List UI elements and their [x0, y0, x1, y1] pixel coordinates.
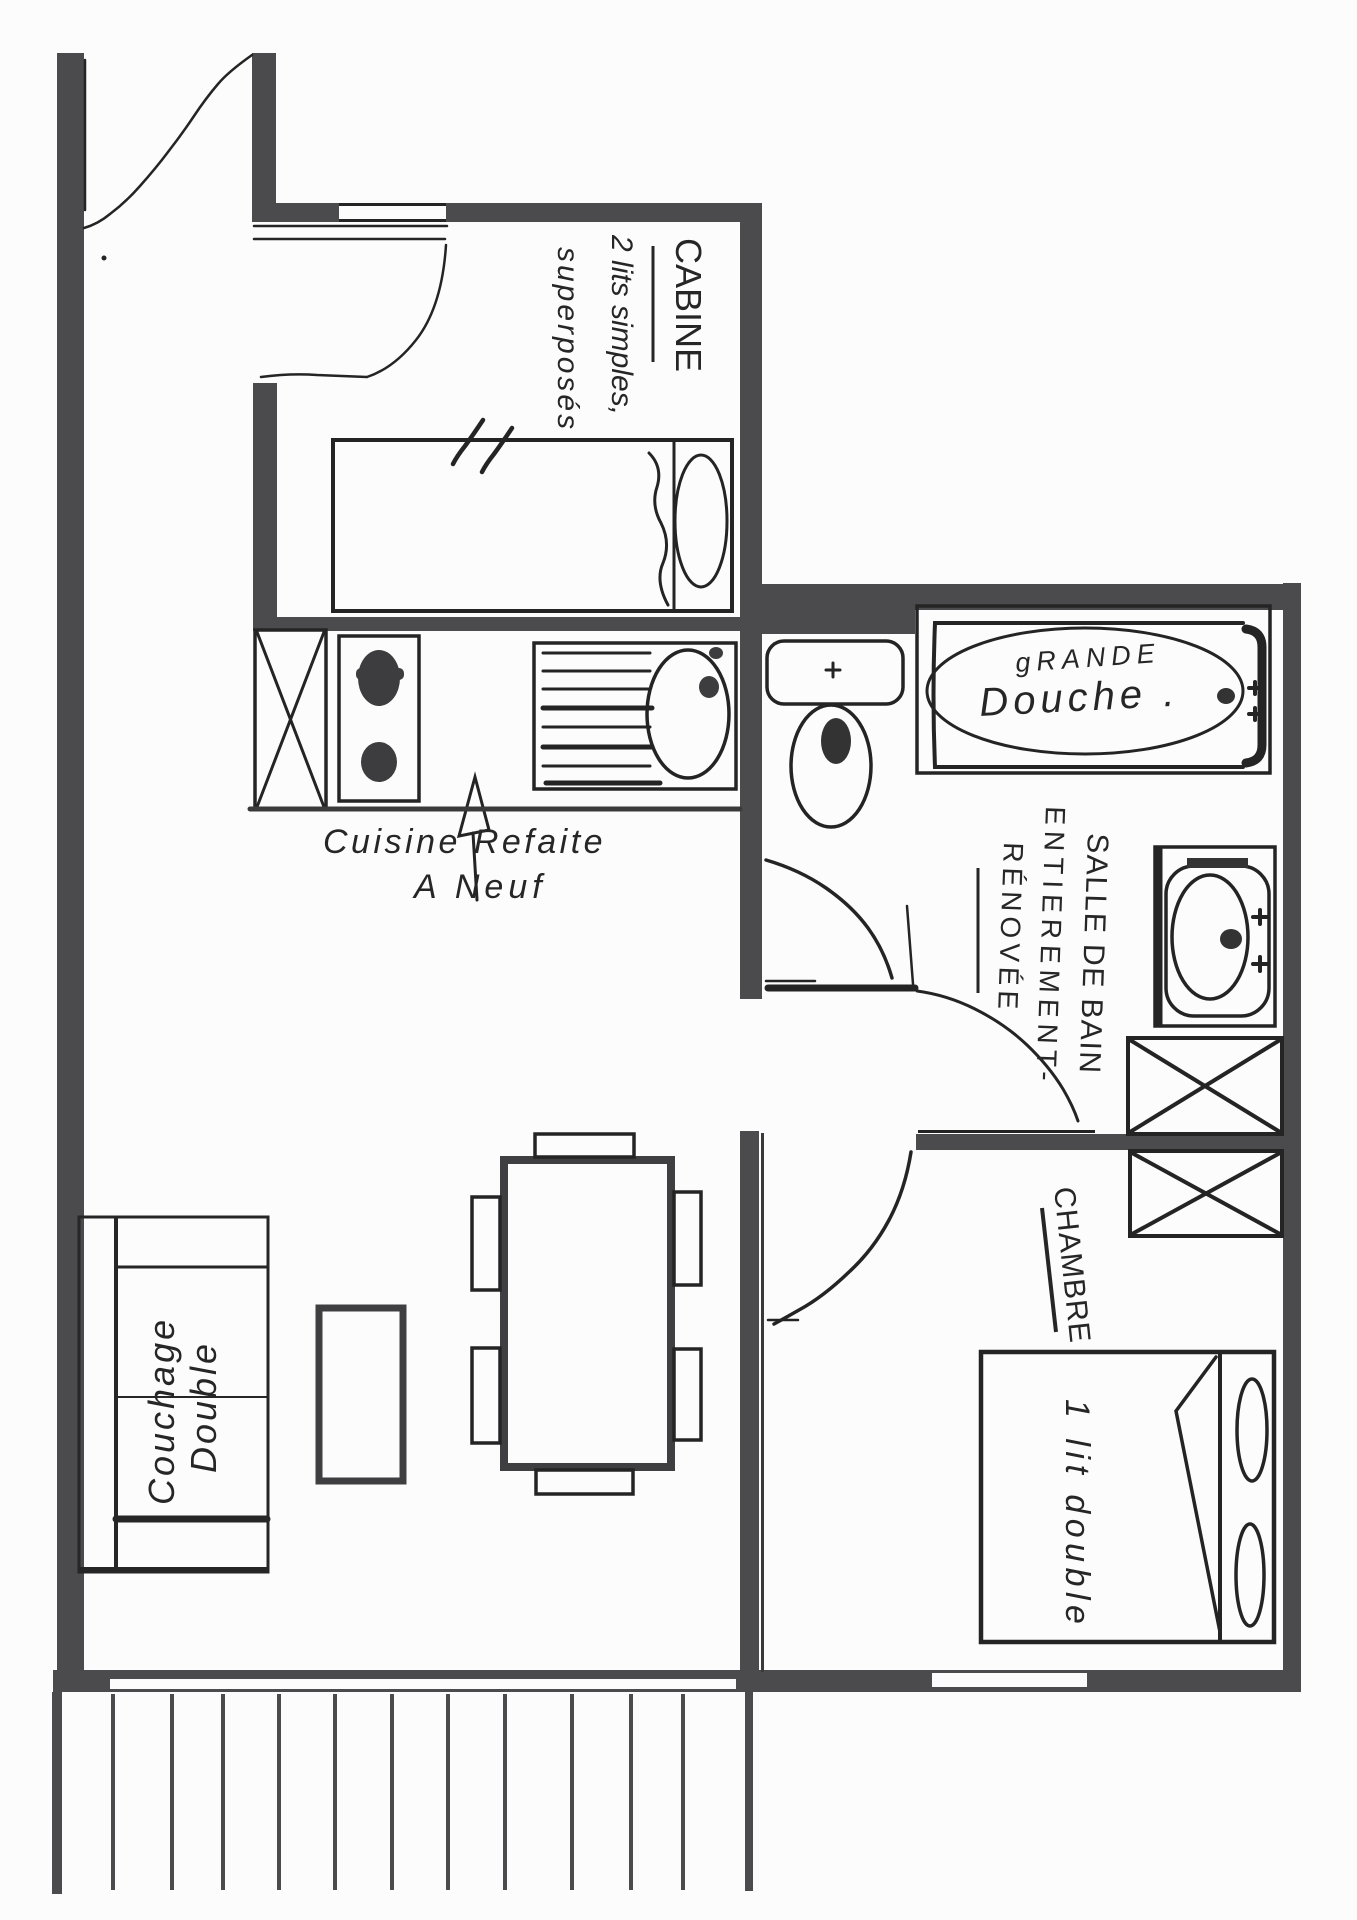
svg-text:CABINE: CABINE	[668, 238, 709, 372]
svg-text:1 lit double: 1 lit double	[1058, 1399, 1096, 1629]
svg-text:Couchage: Couchage	[141, 1317, 182, 1505]
svg-text:superposés: superposés	[551, 247, 584, 432]
svg-text:A Neuf: A Neuf	[412, 868, 547, 906]
svg-text:2 lits simples,: 2 lits simples,	[605, 234, 638, 415]
svg-text:RÉNOVÉE: RÉNOVÉE	[992, 842, 1029, 1015]
svg-text:Cuisine Refaite: Cuisine Refaite	[323, 823, 606, 861]
svg-text:Double: Double	[183, 1341, 224, 1473]
